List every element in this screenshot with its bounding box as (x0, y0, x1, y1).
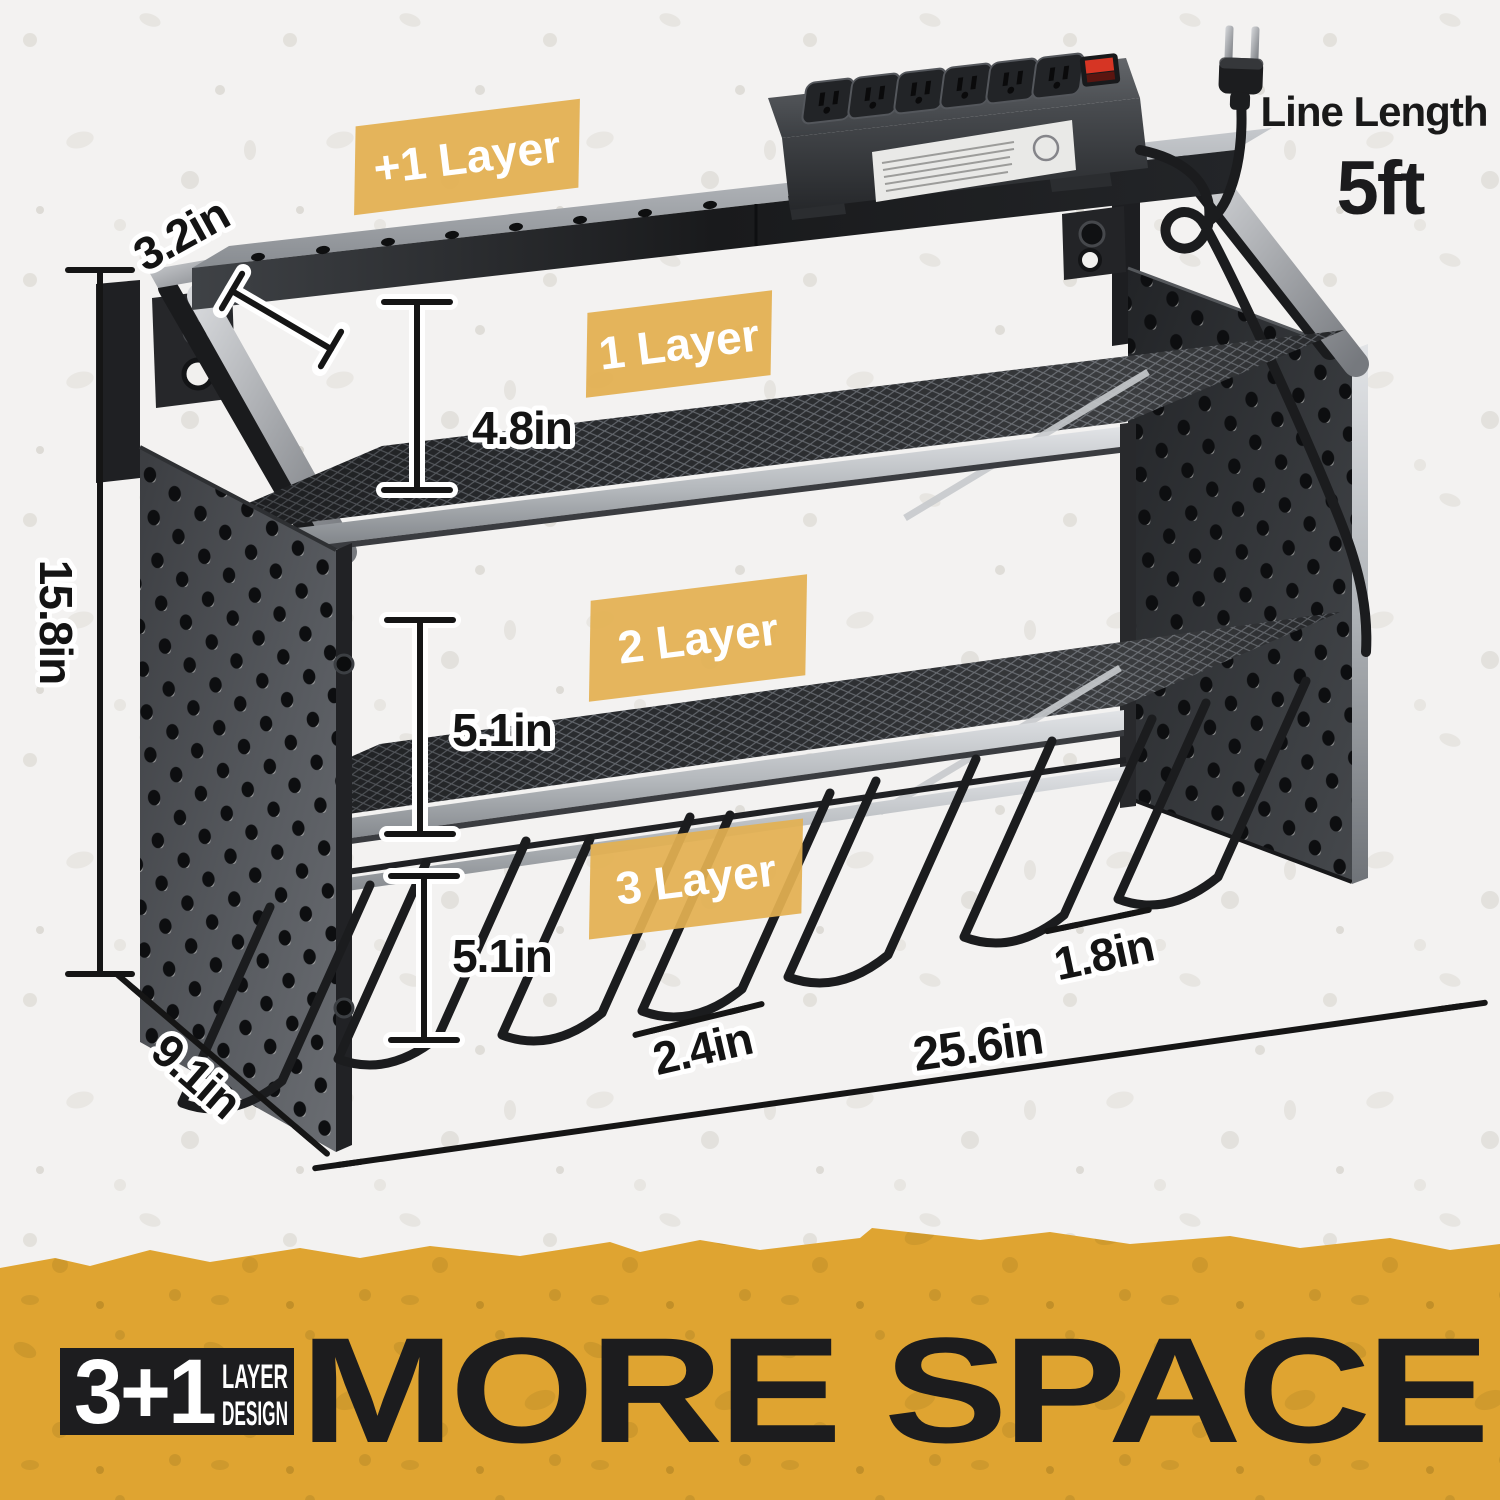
dim-label: 5.1in (452, 704, 552, 756)
plug-prong (1250, 26, 1259, 62)
power-switch (1079, 53, 1120, 87)
stat-value: 3+1 (74, 1341, 215, 1443)
stat-caption-line2: DESIGN (222, 1395, 288, 1433)
scene-svg: +1 Layer 1 Layer 2 Layer 3 Layer 15.8in (0, 0, 1500, 1500)
keyhole-slot-icon (1080, 250, 1100, 270)
plug-prong (1224, 25, 1233, 61)
dim-label: 15.8in (30, 560, 82, 684)
screw-icon (1080, 222, 1104, 246)
dim-label: 5.1in (452, 930, 552, 982)
bolt-icon (335, 655, 353, 673)
product-infographic: +1 Layer 1 Layer 2 Layer 3 Layer 15.8in (0, 0, 1500, 1500)
bolt-icon (335, 999, 353, 1017)
banner-headline: MORE SPACE (300, 1306, 1485, 1474)
line-length-value: 5ft (1337, 146, 1426, 231)
line-length-label: Line Length (1261, 88, 1488, 135)
bottom-banner: 3+1 LAYER DESIGN MORE SPACE (0, 1228, 1500, 1500)
stat-caption-line1: LAYER (222, 1358, 288, 1396)
dim-label: 4.8in (472, 402, 572, 454)
